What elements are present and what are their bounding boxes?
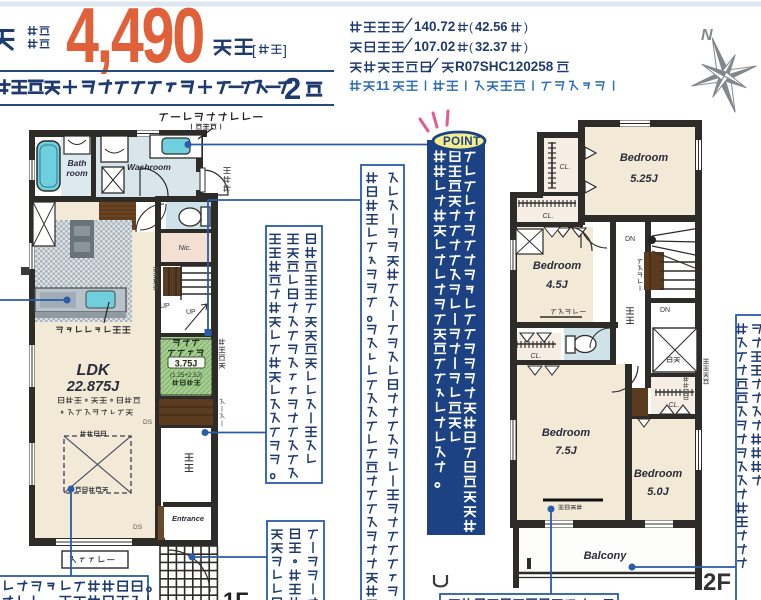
svg-text:DS: DS <box>133 524 143 531</box>
svg-text:): ) <box>524 40 528 54</box>
svg-text:(: ( <box>469 20 473 34</box>
svg-text:LDK: LDK <box>77 362 111 379</box>
svg-text:N: N <box>701 27 713 44</box>
svg-text:5.25J: 5.25J <box>630 173 658 185</box>
svg-text:CL.: CL. <box>669 402 680 409</box>
svg-text:UP: UP <box>160 303 170 310</box>
svg-text:CL.: CL. <box>560 164 571 171</box>
svg-text:Bedroom: Bedroom <box>634 468 683 480</box>
svg-text:5.0J: 5.0J <box>647 486 669 498</box>
svg-text:CL.: CL. <box>531 353 542 360</box>
svg-text:Bedroom: Bedroom <box>542 427 591 439</box>
svg-text:2: 2 <box>284 71 301 106</box>
svg-text:3.75J: 3.75J <box>175 359 198 369</box>
svg-text:Bedroom: Bedroom <box>620 152 669 164</box>
svg-text:2F: 2F <box>703 569 731 596</box>
svg-text:11: 11 <box>376 78 390 93</box>
svg-text:CL.: CL. <box>543 213 554 220</box>
svg-text:(1.25+2.5J): (1.25+2.5J) <box>170 372 202 379</box>
svg-text:Bedroom: Bedroom <box>533 260 582 272</box>
svg-text:4,490: 4,490 <box>66 0 203 79</box>
svg-text:1F: 1F <box>223 588 249 600</box>
svg-text:4.5J: 4.5J <box>545 279 568 291</box>
svg-text:Entrance: Entrance <box>172 514 204 523</box>
svg-text:Bath: Bath <box>68 158 87 168</box>
svg-text:DN: DN <box>660 307 670 314</box>
svg-text:): ) <box>524 20 528 34</box>
svg-text:Nic.: Nic. <box>179 243 192 252</box>
svg-text:[: [ <box>252 42 256 58</box>
svg-text:DN: DN <box>625 236 635 243</box>
svg-text:(: ( <box>469 40 473 54</box>
svg-text:22.875J: 22.875J <box>66 379 120 395</box>
svg-text:107.02: 107.02 <box>414 39 455 54</box>
svg-text:Balcony: Balcony <box>584 550 628 562</box>
svg-text:32.37: 32.37 <box>475 39 508 54</box>
svg-text:R07SHC120258: R07SHC120258 <box>455 59 554 74</box>
svg-text:DS: DS <box>143 419 153 426</box>
svg-text:7.5J: 7.5J <box>555 445 577 457</box>
svg-text:UP: UP <box>186 309 196 316</box>
svg-text:POINT: POINT <box>443 136 481 148</box>
svg-text:42.56: 42.56 <box>475 19 508 34</box>
svg-text:]: ] <box>283 42 287 58</box>
svg-text:Washroom: Washroom <box>127 162 171 172</box>
svg-text:140.72: 140.72 <box>414 19 455 34</box>
svg-text:room: room <box>66 168 88 178</box>
